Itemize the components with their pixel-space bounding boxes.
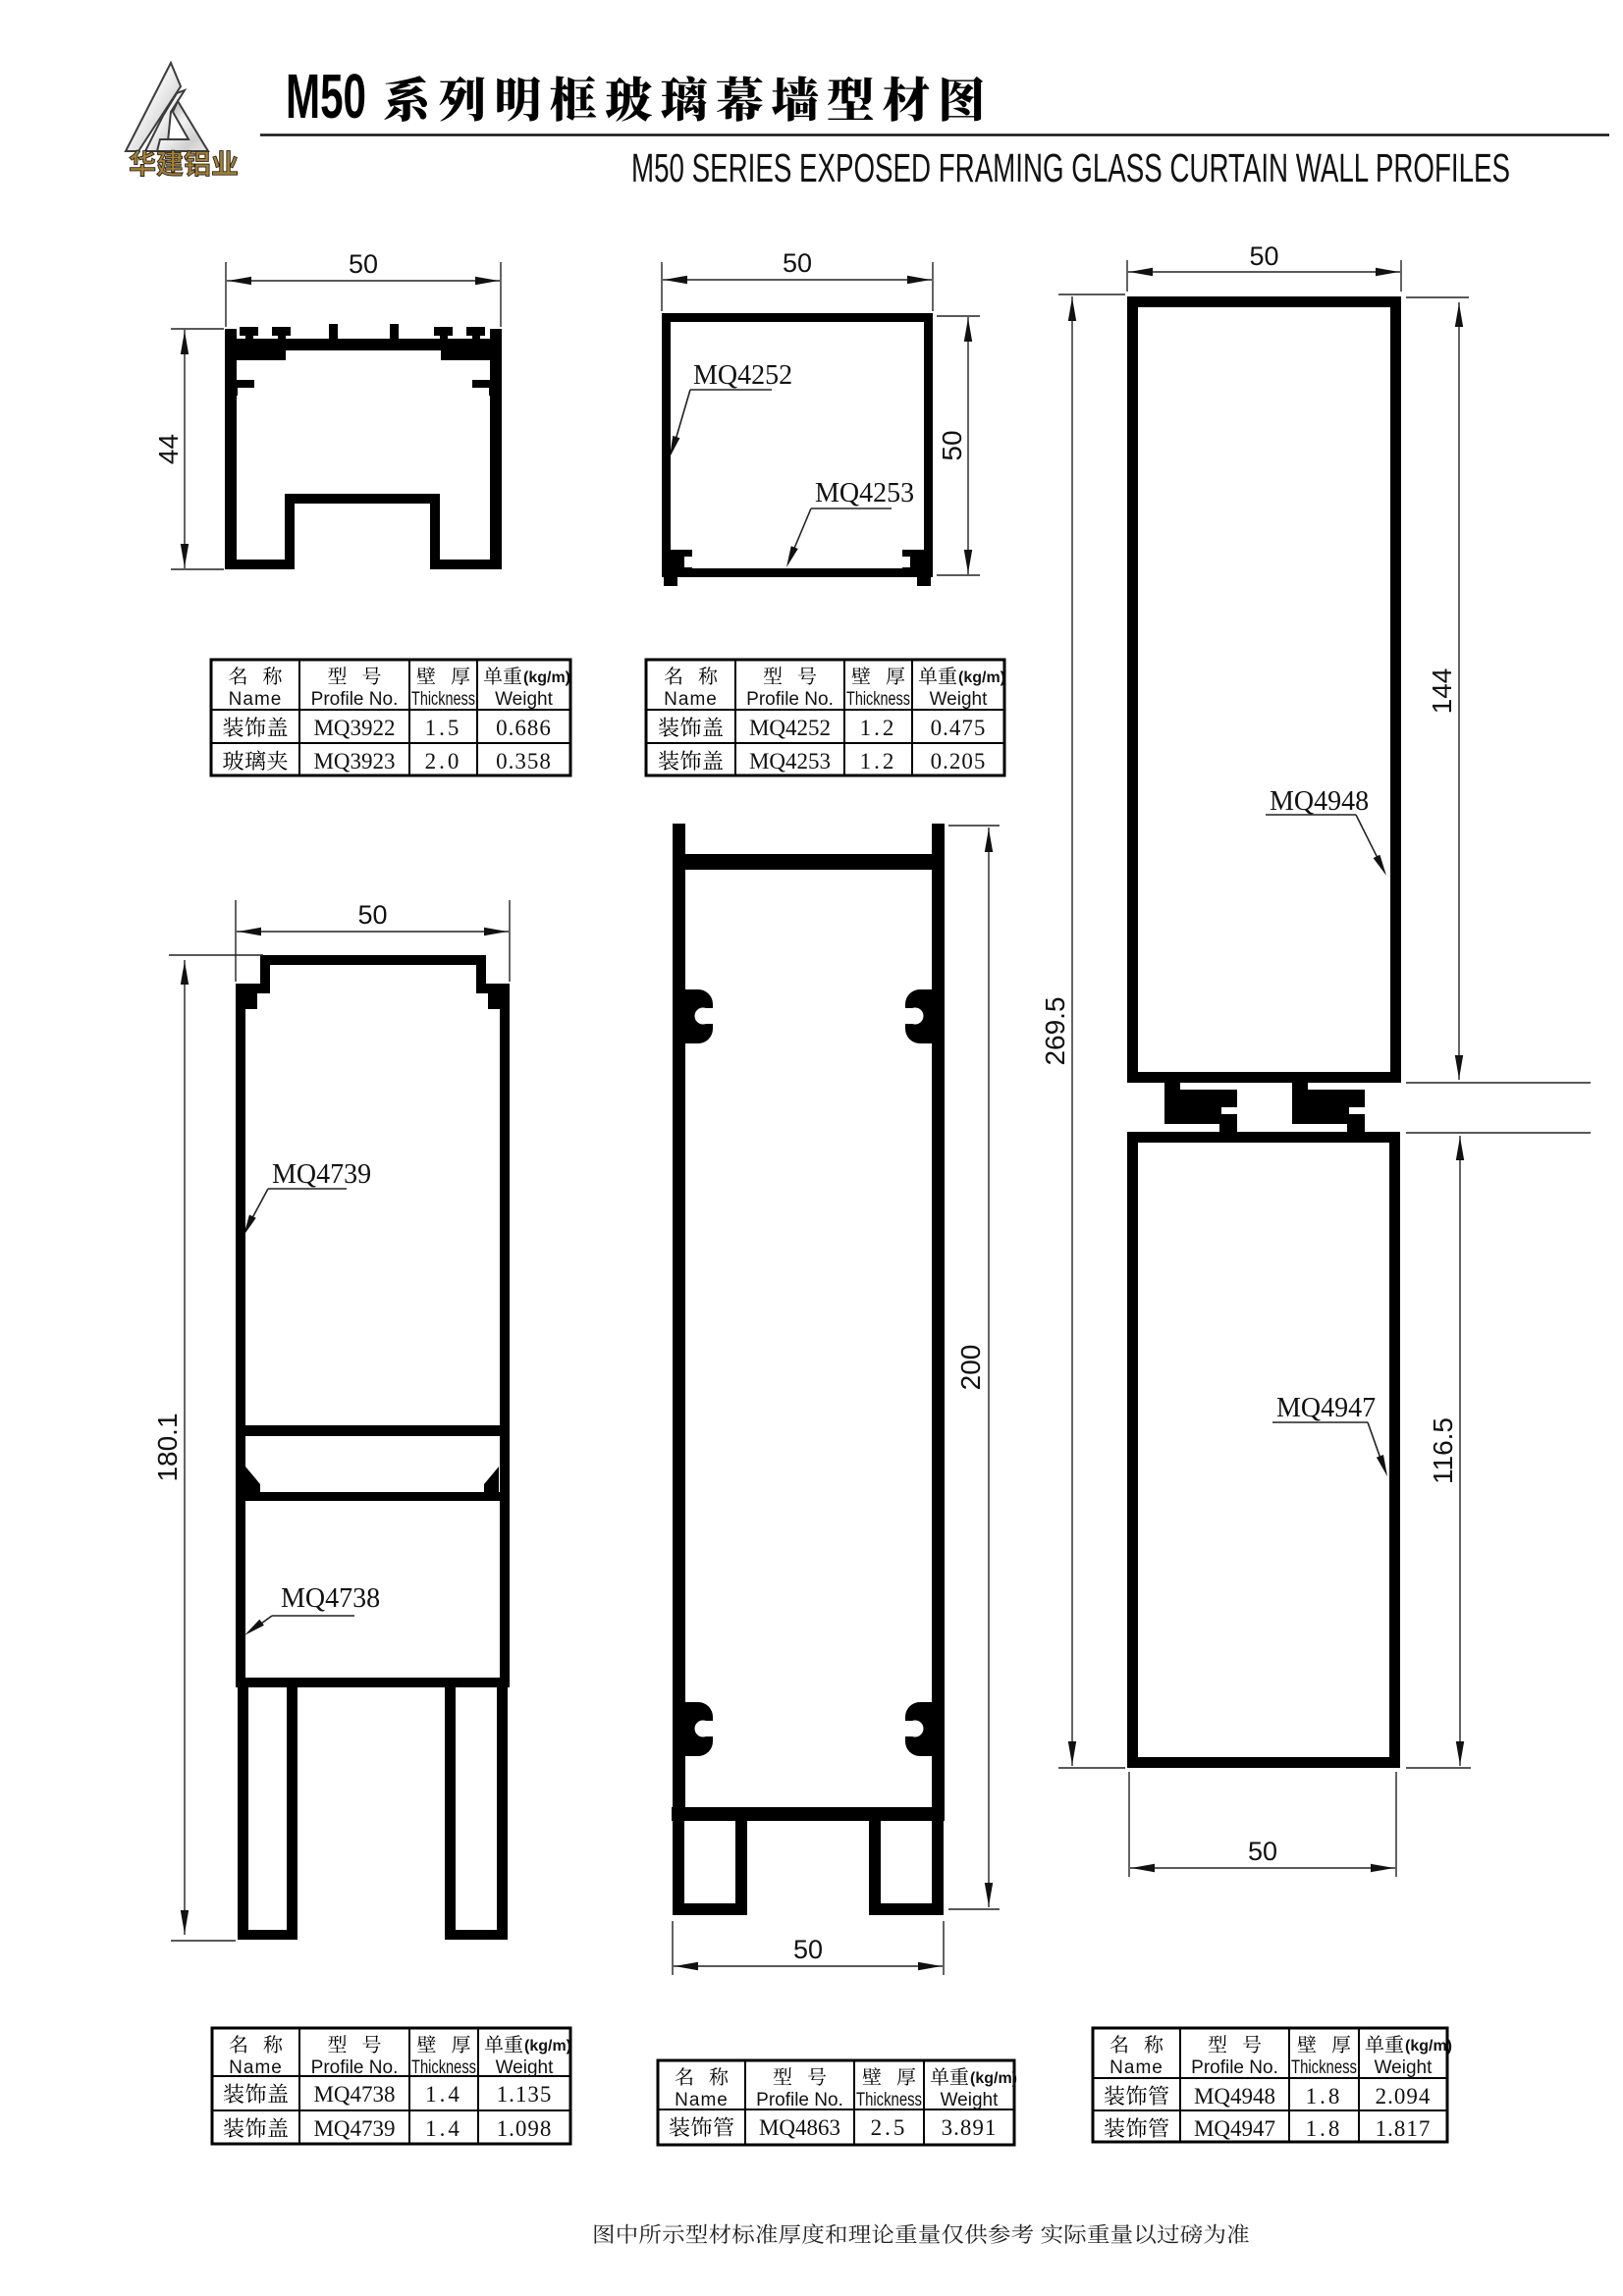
svg-text:1.8: 1.8 [1306,2084,1343,2109]
svg-text:269.5: 269.5 [1040,996,1070,1065]
svg-text:Name: Name [1109,2057,1163,2078]
svg-text:0.475: 0.475 [931,716,987,740]
svg-text:1.5: 1.5 [425,716,462,740]
svg-text:MQ4738: MQ4738 [313,2082,395,2107]
svg-text:1.098: 1.098 [497,2116,553,2141]
svg-text:50: 50 [793,1935,823,1964]
svg-text:Weight: Weight [930,689,989,710]
svg-text:200: 200 [955,1345,986,1391]
svg-text:0.686: 0.686 [496,716,552,740]
svg-text:3.891: 3.891 [942,2115,998,2140]
svg-text:Weight: Weight [495,689,554,710]
svg-text:50: 50 [357,900,387,930]
svg-text:Name: Name [229,689,283,710]
svg-text:1.817: 1.817 [1376,2116,1432,2141]
svg-text:1.135: 1.135 [497,2082,553,2107]
svg-text:Thickness: Thickness [411,689,475,710]
svg-text:Name: Name [664,689,718,710]
svg-text:MQ4738: MQ4738 [281,1583,380,1614]
svg-text:MQ4948: MQ4948 [1270,786,1369,817]
svg-text:Weight: Weight [496,2057,555,2078]
svg-text:MQ4253: MQ4253 [749,749,831,774]
svg-text:144: 144 [1427,668,1457,715]
svg-text:MQ4739: MQ4739 [313,2116,395,2141]
svg-text:50: 50 [783,248,812,278]
svg-text:Weight: Weight [941,2090,1000,2110]
svg-text:MQ4948: MQ4948 [1194,2084,1275,2109]
svg-text:MQ4947: MQ4947 [1194,2116,1275,2141]
svg-text:Thickness: Thickness [411,2057,476,2078]
svg-text:Profile No.: Profile No. [311,689,399,710]
svg-text:M50 SERIES EXPOSED FRAMING GL: M50 SERIES EXPOSED FRAMING GLASS CURTAIN… [631,145,1510,190]
svg-text:Name: Name [229,2057,283,2078]
svg-text:2.0: 2.0 [425,749,462,774]
svg-text:MQ4252: MQ4252 [693,360,792,391]
svg-text:Profile No.: Profile No. [1191,2057,1278,2078]
svg-text:Thickness: Thickness [856,2090,922,2110]
svg-text:Thickness: Thickness [1291,2057,1357,2078]
svg-text:1.8: 1.8 [1306,2116,1343,2141]
svg-text:50: 50 [1249,241,1278,271]
svg-text:2.094: 2.094 [1376,2084,1432,2109]
svg-text:1.2: 1.2 [860,716,897,740]
svg-text:0.358: 0.358 [496,749,552,774]
svg-text:(kg/m): (kg/m) [524,2038,571,2055]
svg-text:Name: Name [675,2090,729,2110]
svg-text:MQ4252: MQ4252 [749,716,831,740]
svg-text:50: 50 [1248,1837,1277,1866]
svg-text:MQ3923: MQ3923 [313,749,395,774]
svg-text:Thickness: Thickness [846,689,910,710]
svg-text:2.5: 2.5 [871,2115,908,2140]
svg-text:MQ4863: MQ4863 [759,2115,840,2140]
svg-text:(kg/m): (kg/m) [958,669,1005,686]
svg-text:M50: M50 [286,61,366,132]
svg-text:MQ4947: MQ4947 [1276,1393,1376,1423]
svg-text:MQ4739: MQ4739 [272,1159,371,1190]
svg-text:Weight: Weight [1375,2057,1434,2078]
svg-text:Profile No.: Profile No. [746,689,834,710]
svg-text:Profile No.: Profile No. [311,2057,399,2078]
svg-text:MQ3922: MQ3922 [313,716,395,740]
svg-text:180.1: 180.1 [152,1413,183,1481]
svg-text:MQ4253: MQ4253 [815,478,914,508]
svg-text:Profile No.: Profile No. [756,2090,843,2110]
svg-text:(kg/m): (kg/m) [1405,2038,1452,2055]
svg-text:1.4: 1.4 [425,2116,462,2141]
svg-text:(kg/m): (kg/m) [523,669,570,686]
svg-text:(kg/m): (kg/m) [970,2070,1017,2087]
svg-text:0.205: 0.205 [931,749,987,774]
svg-text:50: 50 [937,430,967,460]
svg-text:44: 44 [153,434,184,464]
svg-text:1.2: 1.2 [860,749,897,774]
svg-text:1.4: 1.4 [425,2082,462,2107]
svg-text:50: 50 [349,249,378,279]
svg-text:116.5: 116.5 [1428,1417,1458,1484]
